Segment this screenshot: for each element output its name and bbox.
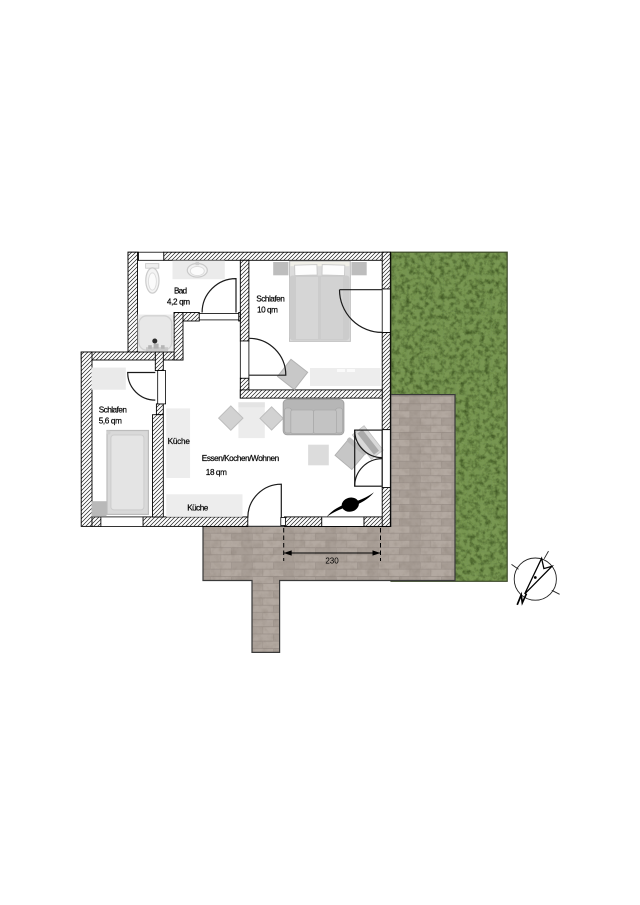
svg-text:Bad: Bad	[174, 287, 187, 296]
svg-text:Schlafen: Schlafen	[256, 295, 285, 304]
svg-text:Essen/Kochen/Wohnen: Essen/Kochen/Wohnen	[202, 454, 280, 463]
svg-text:Küche: Küche	[187, 504, 209, 513]
svg-text:18 qm: 18 qm	[206, 468, 227, 477]
svg-text:10 qm: 10 qm	[257, 306, 278, 315]
svg-text:230: 230	[325, 557, 339, 566]
svg-text:Küche: Küche	[168, 437, 191, 446]
svg-text:4,2 qm: 4,2 qm	[167, 298, 190, 307]
svg-text:Schlafen: Schlafen	[99, 406, 128, 415]
svg-text:5,6 qm: 5,6 qm	[99, 417, 122, 426]
